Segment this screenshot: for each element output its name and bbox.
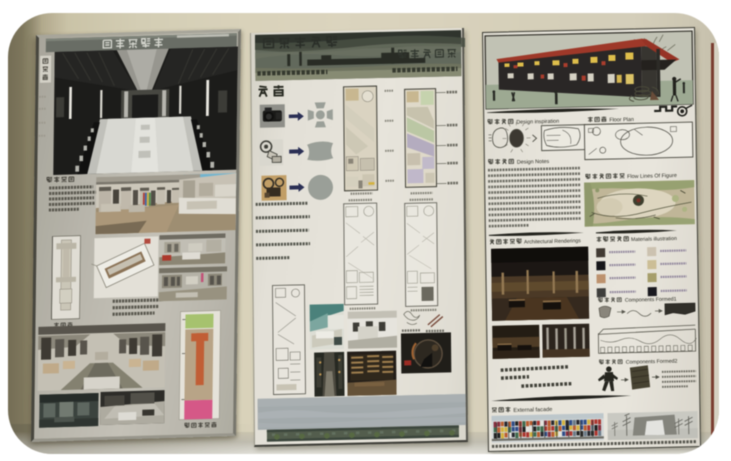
svg-text:Design inspiration: Design inspiration — [516, 119, 559, 126]
svg-text:Design Notes: Design Notes — [517, 159, 550, 166]
svg-text:Materials illustration: Materials illustration — [631, 236, 677, 243]
svg-text:Architectural Renderings: Architectural Renderings — [524, 238, 581, 245]
svg-text:Flow Lines Of Figure: Flow Lines Of Figure — [627, 173, 677, 180]
svg-text:External facade: External facade — [513, 407, 552, 414]
svg-text:Floor Plan: Floor Plan — [609, 117, 634, 124]
svg-text:Components Formed2: Components Formed2 — [626, 359, 678, 366]
svg-text:Components Formed1: Components Formed1 — [625, 297, 677, 304]
